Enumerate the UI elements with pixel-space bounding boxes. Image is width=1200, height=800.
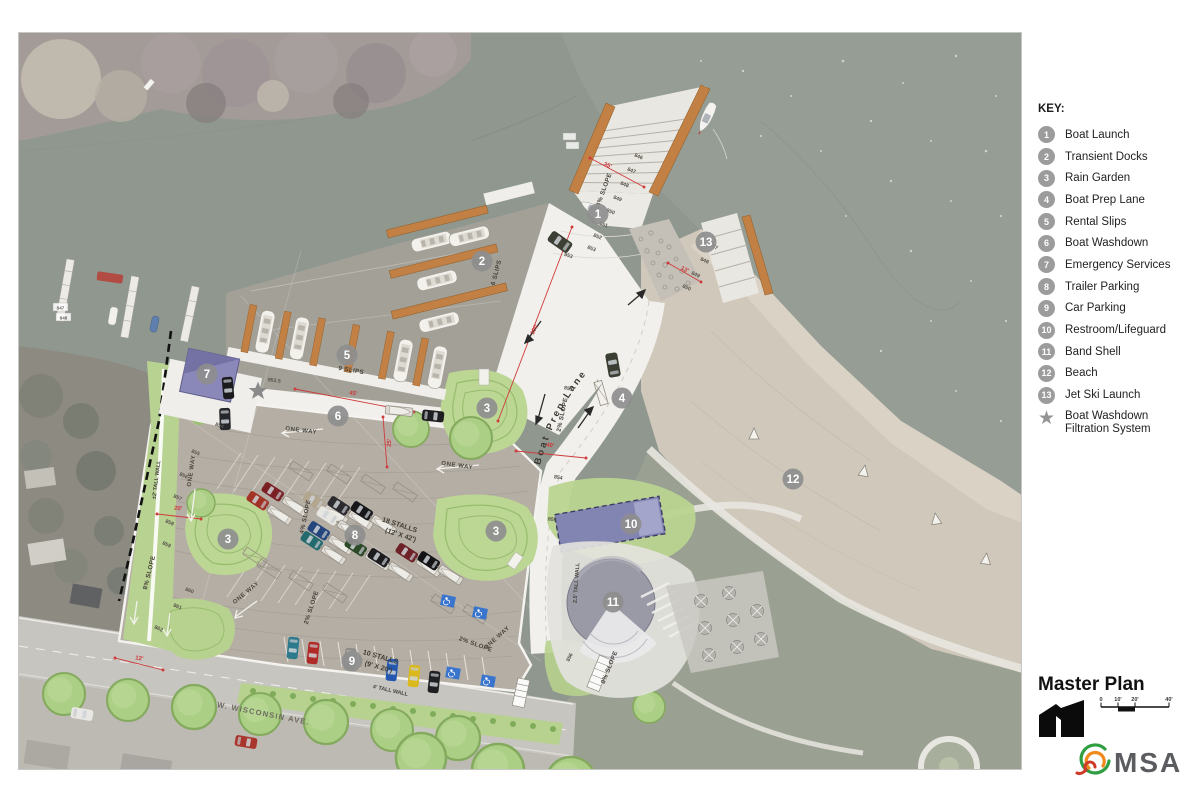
key-item-boat-washdown: 6Boat Washdown xyxy=(1038,232,1170,254)
key-marker-6: 6 xyxy=(1038,235,1055,252)
svg-text:855: 855 xyxy=(547,516,557,523)
svg-text:3: 3 xyxy=(484,403,490,415)
svg-text:3: 3 xyxy=(225,534,231,546)
svg-text:3: 3 xyxy=(493,526,499,538)
svg-text:7: 7 xyxy=(204,369,210,381)
svg-text:11: 11 xyxy=(607,597,620,609)
svg-text:4: 4 xyxy=(619,393,626,405)
svg-text:20': 20' xyxy=(174,506,183,513)
marker-rain-garden-center: 3 xyxy=(486,521,507,542)
key-item-rental-slips: 5Rental Slips xyxy=(1038,211,1170,233)
key-item-trailer-parking: 8Trailer Parking xyxy=(1038,276,1170,298)
marker-restroom-lifeguard: 10 xyxy=(621,514,642,535)
marker-beach: 12 xyxy=(783,469,804,490)
marker-band-shell: 11 xyxy=(603,592,624,613)
star-icon: ★ xyxy=(1038,410,1055,427)
key-item-boat-launch: 1Boat Launch xyxy=(1038,124,1170,146)
key-marker-12: 12 xyxy=(1038,365,1055,382)
north-arrow-icon xyxy=(1038,700,1086,738)
msa-logo: MSA xyxy=(1074,740,1190,784)
svg-text:2: 2 xyxy=(479,256,485,268)
marker-jet-ski-launch: 13 xyxy=(696,232,717,253)
svg-text:10': 10' xyxy=(1114,697,1122,703)
svg-text:1: 1 xyxy=(595,209,602,221)
svg-text:5: 5 xyxy=(344,350,351,362)
marker-transient-docks: 2 xyxy=(472,251,493,272)
marker-rental-slips: 5 xyxy=(337,345,358,366)
key-item-car-parking: 9Car Parking xyxy=(1038,298,1170,320)
svg-text:40': 40' xyxy=(1165,697,1173,703)
key-marker-3: 3 xyxy=(1038,170,1055,187)
key-item-filtration-system: ★ Boat WashdownFiltration System xyxy=(1038,410,1170,437)
svg-text:8: 8 xyxy=(352,530,359,542)
key-item-band-shell: 11Band Shell xyxy=(1038,341,1170,363)
marker-boat-launch: 1 xyxy=(588,204,609,225)
key-item-restroom-lifeguard: 10Restroom/Lifeguard xyxy=(1038,319,1170,341)
marker-boat-prep-lane: 4 xyxy=(612,388,633,409)
key-item-transient-docks: 2Transient Docks xyxy=(1038,146,1170,168)
key-item-jet-ski-launch: 13Jet Ski Launch xyxy=(1038,384,1170,406)
svg-text:847: 847 xyxy=(57,306,65,311)
key-item-emergency-services: 7Emergency Services xyxy=(1038,254,1170,276)
key-marker-9: 9 xyxy=(1038,300,1055,317)
key-title: KEY: xyxy=(1038,103,1065,115)
scale-bar: 0 10' 20' 40' xyxy=(1098,692,1190,722)
marker-rain-garden-north: 3 xyxy=(477,398,498,419)
marker-car-parking: 9 xyxy=(342,651,363,672)
svg-text:40': 40' xyxy=(546,443,555,450)
key-marker-11: 11 xyxy=(1038,343,1055,360)
svg-text:9: 9 xyxy=(349,656,355,668)
marker-trailer-parking: 8 xyxy=(345,525,366,546)
svg-text:10: 10 xyxy=(625,519,638,531)
msa-logo-text: MSA xyxy=(1114,747,1182,778)
svg-text:0: 0 xyxy=(1099,697,1102,703)
site-plan-map: 6 SLIPS 9 SLIPS 14% SLOPE 2% SLOPE 4% SL… xyxy=(18,32,1022,770)
marker-boat-washdown: 6 xyxy=(328,406,349,427)
key-marker-8: 8 xyxy=(1038,278,1055,295)
marker-emergency-services: 7 xyxy=(197,364,218,385)
legend-panel: KEY: 1Boat Launch 2Transient Docks 3Rain… xyxy=(1038,0,1198,800)
marker-rain-garden-west: 3 xyxy=(218,529,239,550)
key-marker-7: 7 xyxy=(1038,256,1055,273)
key-marker-13: 13 xyxy=(1038,387,1055,404)
svg-text:848: 848 xyxy=(60,316,68,321)
key-item-boat-prep-lane: 4Boat Prep Lane xyxy=(1038,189,1170,211)
svg-text:25': 25' xyxy=(387,438,394,447)
key-marker-5: 5 xyxy=(1038,213,1055,230)
svg-text:12: 12 xyxy=(787,474,800,486)
key-marker-2: 2 xyxy=(1038,148,1055,165)
msa-logo-icon xyxy=(1077,745,1109,774)
key-list: 1Boat Launch 2Transient Docks 3Rain Gard… xyxy=(1038,124,1170,437)
svg-text:6: 6 xyxy=(335,411,341,423)
key-item-beach: 12Beach xyxy=(1038,363,1170,385)
key-marker-1: 1 xyxy=(1038,126,1055,143)
key-marker-4: 4 xyxy=(1038,191,1055,208)
key-marker-10: 10 xyxy=(1038,322,1055,339)
svg-text:20': 20' xyxy=(1131,697,1139,703)
key-item-rain-garden: 3Rain Garden xyxy=(1038,167,1170,189)
svg-text:13: 13 xyxy=(700,237,713,249)
